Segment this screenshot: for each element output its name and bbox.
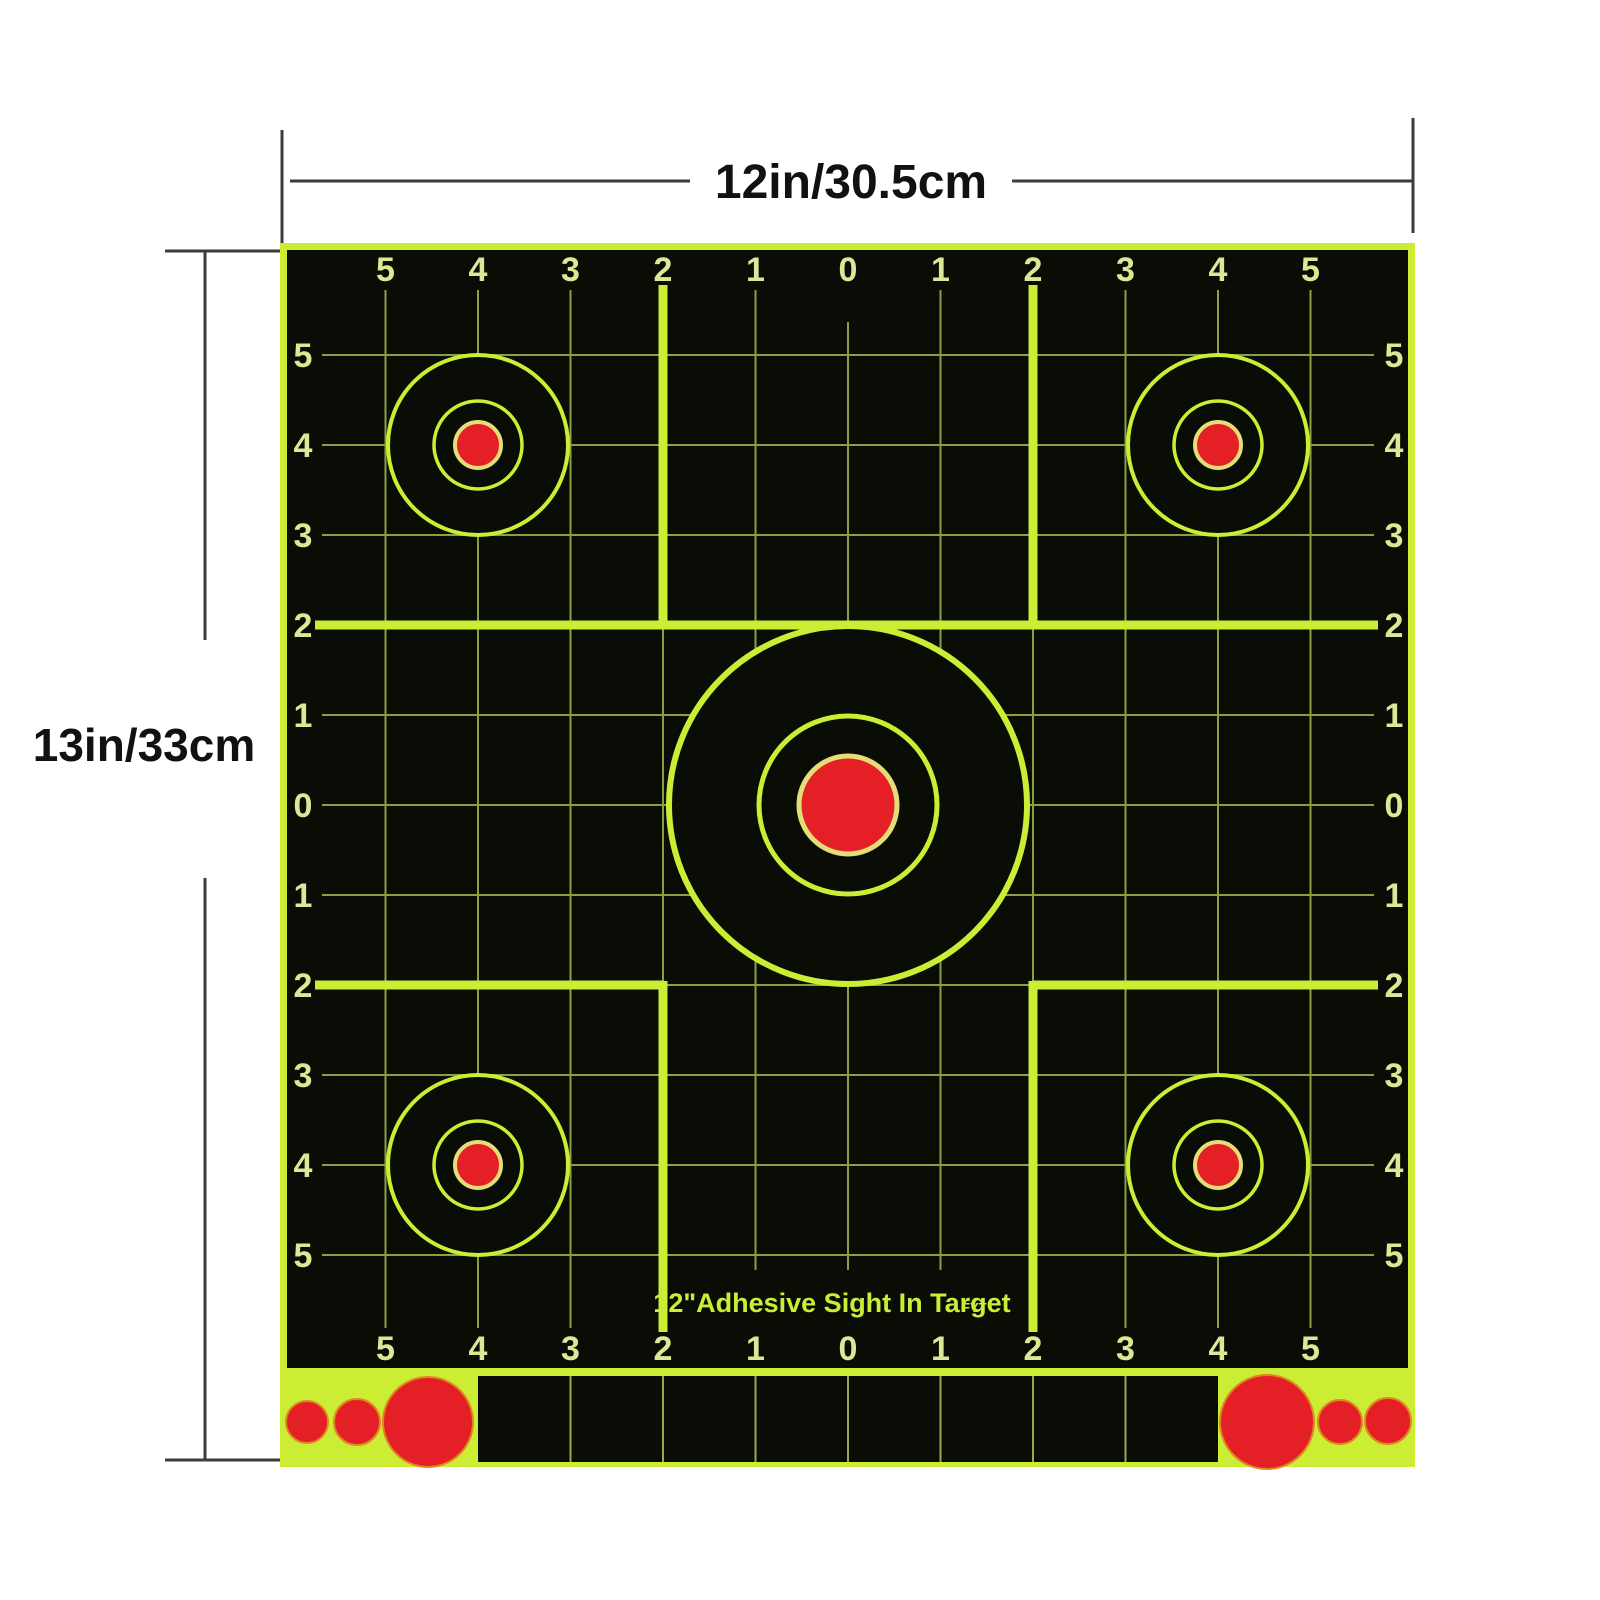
left-scale-label-3: 2 <box>294 607 313 645</box>
bullseye-center <box>669 626 1027 984</box>
patch-dot-small <box>286 1401 328 1443</box>
right-scale-label-4: 1 <box>1385 697 1404 735</box>
patch-dot-small <box>1365 1398 1411 1444</box>
top-scale-label-9: 4 <box>1209 251 1228 289</box>
red-center-dot <box>799 756 897 854</box>
top-scale-label-8: 3 <box>1116 251 1135 289</box>
patch-dot-large <box>383 1377 473 1467</box>
bullseye-top-right <box>1128 355 1308 535</box>
bottom-scale-label-9: 4 <box>1209 1330 1228 1368</box>
bottom-scale-label-7: 2 <box>1024 1330 1043 1368</box>
bullseye-bottom-right <box>1128 1075 1308 1255</box>
brand-label: FYT <box>962 1300 987 1315</box>
patch-dot-small <box>334 1399 380 1445</box>
sight-in-target-product-image: 12in/30.5cm 13in/33cm <box>0 0 1600 1600</box>
top-scale-label-5: 0 <box>839 251 858 289</box>
left-scale-label-5: 0 <box>294 787 313 825</box>
patch-strip <box>286 1375 1411 1469</box>
height-dimension: 13in/33cm <box>33 251 281 1460</box>
top-scale-label-0: 5 <box>376 251 395 289</box>
top-scale-label-10: 5 <box>1301 251 1320 289</box>
bottom-scale-label-1: 4 <box>469 1330 488 1368</box>
left-scale-label-2: 3 <box>294 517 313 555</box>
right-scale-label-6: 1 <box>1385 877 1404 915</box>
bottom-scale-label-5: 0 <box>839 1330 858 1368</box>
red-center-dot <box>1195 422 1241 468</box>
left-scale-label-6: 1 <box>294 877 313 915</box>
red-center-dot <box>1195 1142 1241 1188</box>
patch-dot-small <box>1318 1400 1362 1444</box>
top-scale-label-7: 2 <box>1024 251 1043 289</box>
bottom-scale-label-0: 5 <box>376 1330 395 1368</box>
bottom-scale-label-6: 1 <box>931 1330 950 1368</box>
top-scale-label-2: 3 <box>561 251 580 289</box>
bottom-scale-label-4: 1 <box>746 1330 765 1368</box>
red-center-dot <box>455 1142 501 1188</box>
left-scale-label-9: 4 <box>294 1147 313 1185</box>
left-scale-label-8: 3 <box>294 1057 313 1095</box>
left-scale-label-7: 2 <box>294 967 313 1005</box>
bottom-scale-label-10: 5 <box>1301 1330 1320 1368</box>
width-dimension: 12in/30.5cm <box>282 118 1413 243</box>
right-scale-label-3: 2 <box>1385 607 1404 645</box>
top-scale-label-3: 2 <box>654 251 673 289</box>
right-scale-label-8: 3 <box>1385 1057 1404 1095</box>
right-scale-label-10: 5 <box>1385 1237 1404 1275</box>
bullseye-bottom-left <box>388 1075 568 1255</box>
right-scale-label-0: 5 <box>1385 337 1404 375</box>
patch-dot-large <box>1220 1375 1314 1469</box>
left-scale-label-0: 5 <box>294 337 313 375</box>
left-scale-label-10: 5 <box>294 1237 313 1275</box>
bottom-scale-label-2: 3 <box>561 1330 580 1368</box>
height-dimension-label: 13in/33cm <box>33 719 255 771</box>
top-scale-label-6: 1 <box>931 251 950 289</box>
top-scale-label-4: 1 <box>746 251 765 289</box>
bottom-scale-label-8: 3 <box>1116 1330 1135 1368</box>
target-title: 12"Adhesive Sight In Target <box>653 1288 1010 1318</box>
right-scale-label-9: 4 <box>1385 1147 1404 1185</box>
bottom-scale-label-3: 2 <box>654 1330 673 1368</box>
red-center-dot <box>455 422 501 468</box>
right-scale-label-5: 0 <box>1385 787 1404 825</box>
top-scale-label-1: 4 <box>469 251 488 289</box>
left-scale-label-1: 4 <box>294 427 313 465</box>
target-diagram: 12in/30.5cm 13in/33cm <box>0 0 1600 1600</box>
left-scale-label-4: 1 <box>294 697 313 735</box>
right-scale-label-1: 4 <box>1385 427 1404 465</box>
bullseye-top-left <box>388 355 568 535</box>
width-dimension-label: 12in/30.5cm <box>715 156 987 209</box>
right-scale-label-7: 2 <box>1385 967 1404 1005</box>
right-scale-label-2: 3 <box>1385 517 1404 555</box>
